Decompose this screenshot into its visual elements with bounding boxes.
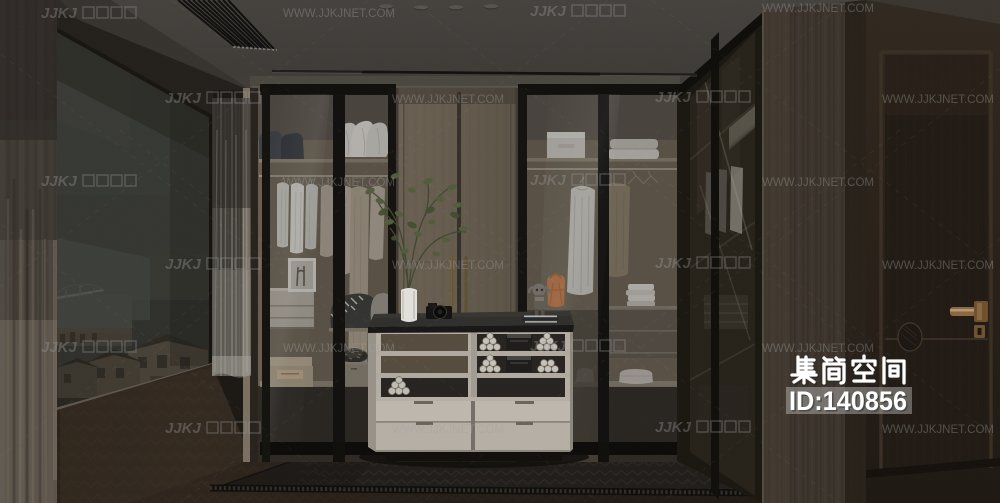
svg-text:JJKJ: JJKJ (165, 420, 202, 437)
svg-text:WWW.JJKJNET.COM: WWW.JJKJNET.COM (762, 1, 874, 15)
svg-text:WWW.JJKJNET.COM: WWW.JJKJNET.COM (882, 92, 994, 106)
svg-text:WWW.JJKJNET.COM: WWW.JJKJNET.COM (283, 341, 395, 355)
svg-text:JJKJ: JJKJ (41, 339, 78, 356)
svg-text:JJKJ: JJKJ (165, 90, 202, 107)
svg-text:JJKJ: JJKJ (530, 338, 567, 355)
svg-text:WWW.JJKJNET.COM: WWW.JJKJNET.COM (283, 175, 395, 189)
svg-text:JJKJ: JJKJ (165, 256, 202, 273)
svg-text:WWW.JJKJNET.COM: WWW.JJKJNET.COM (392, 92, 504, 106)
svg-text:WWW.JJKJNET.COM: WWW.JJKJNET.COM (392, 258, 504, 272)
svg-text:JJKJ: JJKJ (41, 173, 78, 190)
svg-text:ID:140856: ID:140856 (789, 386, 907, 416)
svg-text:WWW.JJKJNET.COM: WWW.JJKJNET.COM (762, 175, 874, 189)
svg-text:WWW.JJKJNET.COM: WWW.JJKJNET.COM (882, 422, 994, 436)
svg-text:JJKJ: JJKJ (530, 3, 567, 20)
svg-text:JJKJ: JJKJ (655, 89, 692, 106)
svg-text:JJKJ: JJKJ (655, 419, 692, 436)
svg-text:WWW.JJKJNET.COM: WWW.JJKJNET.COM (392, 422, 504, 436)
svg-text:JJKJ: JJKJ (655, 255, 692, 272)
svg-text:WWW.JJKJNET.COM: WWW.JJKJNET.COM (762, 341, 874, 355)
svg-text:JJKJ: JJKJ (41, 5, 78, 22)
svg-text:WWW.JJKJNET.COM: WWW.JJKJNET.COM (283, 6, 395, 20)
svg-text:JJKJ: JJKJ (530, 172, 567, 189)
svg-text:WWW.JJKJNET.COM: WWW.JJKJNET.COM (882, 258, 994, 272)
